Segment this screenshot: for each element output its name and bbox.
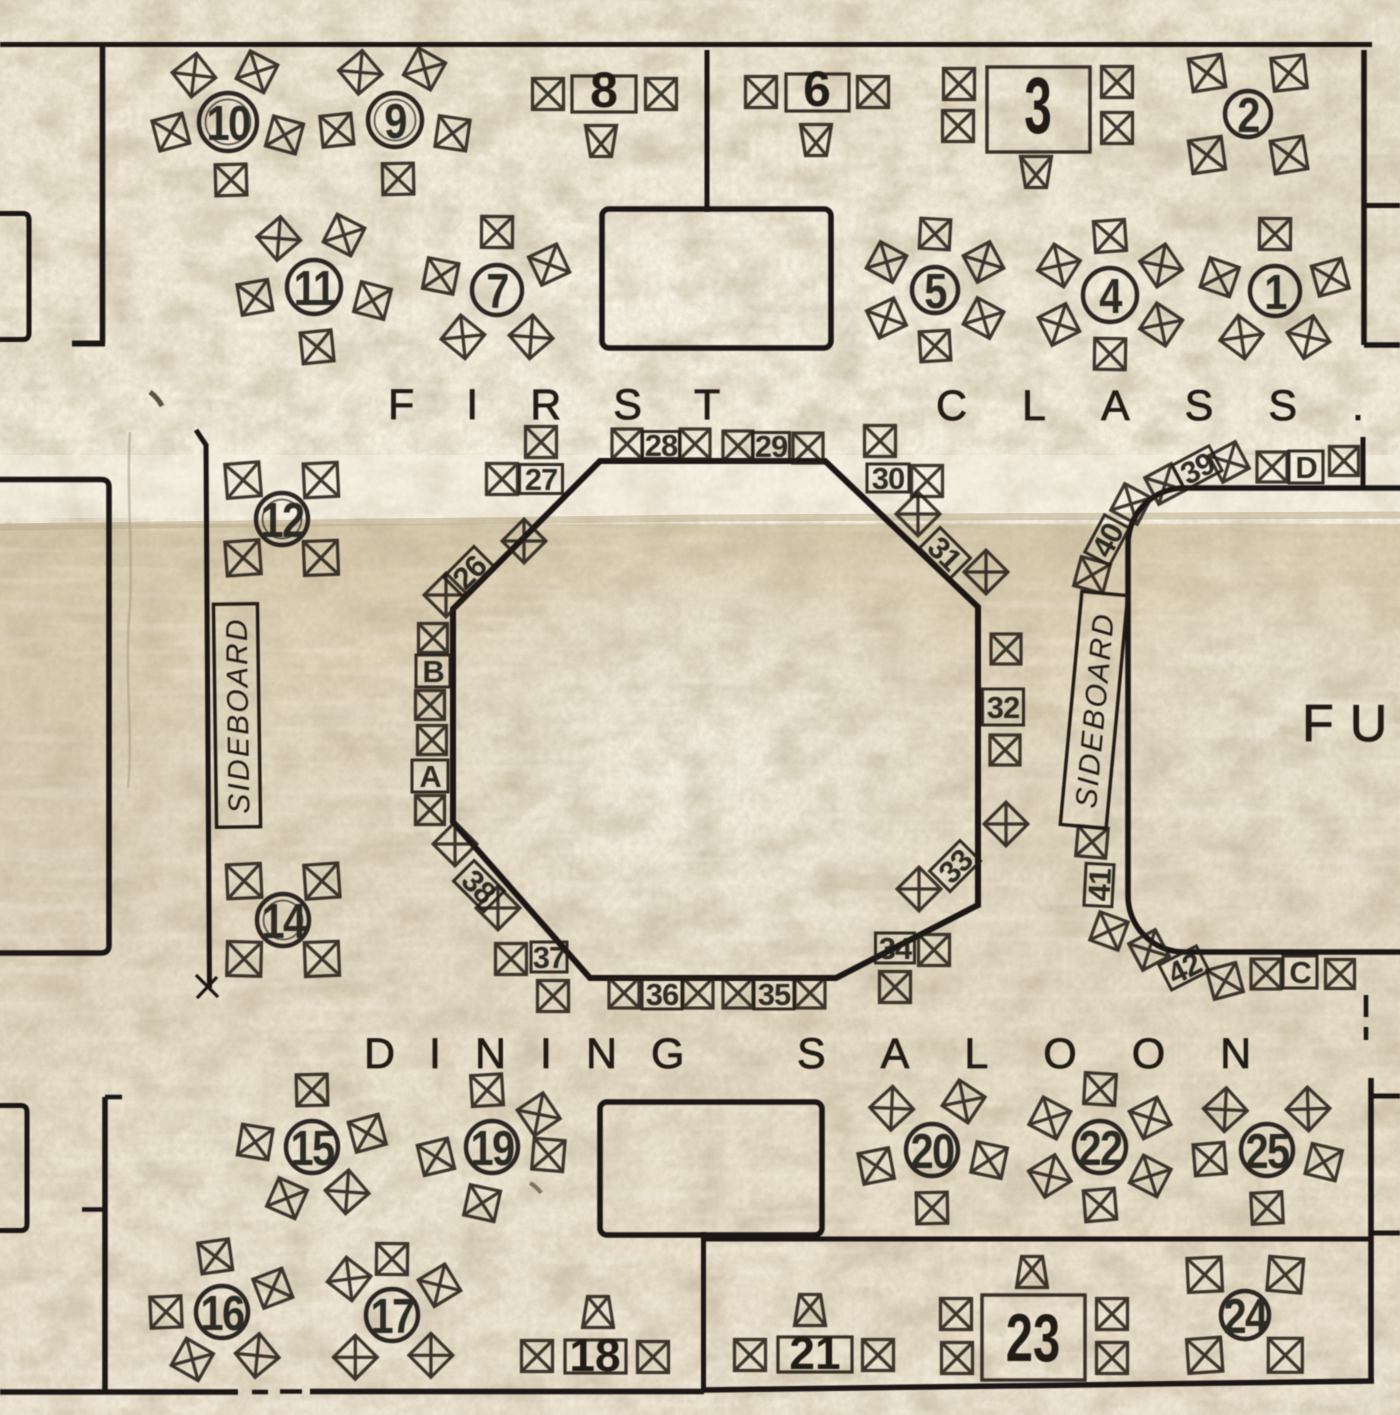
svg-text:5: 5 <box>924 264 947 319</box>
svg-text:8: 8 <box>590 62 618 118</box>
svg-text:3: 3 <box>1024 62 1052 151</box>
svg-text:23: 23 <box>1006 1299 1060 1376</box>
svg-text:41: 41 <box>1081 867 1118 902</box>
svg-text:17: 17 <box>371 1289 414 1344</box>
svg-text:C: C <box>1289 955 1311 990</box>
svg-text:7: 7 <box>486 264 508 319</box>
svg-text:FIRST: FIRST <box>388 381 772 429</box>
svg-text:37: 37 <box>533 940 565 975</box>
svg-text:16: 16 <box>201 1286 244 1341</box>
svg-text:SALOON: SALOON <box>797 1030 1306 1078</box>
svg-text:21: 21 <box>789 1327 840 1379</box>
svg-text:B: B <box>422 654 443 689</box>
svg-text:FU: FU <box>1302 695 1400 753</box>
svg-text:D: D <box>1295 450 1317 485</box>
svg-text:30: 30 <box>872 461 904 496</box>
svg-text:32: 32 <box>987 690 1019 725</box>
svg-text:9: 9 <box>384 94 406 149</box>
svg-text:28: 28 <box>645 428 678 463</box>
svg-text:36: 36 <box>646 977 679 1012</box>
svg-text:1: 1 <box>1264 265 1287 320</box>
svg-text:34: 34 <box>879 931 913 966</box>
svg-text:SIDEBOARD: SIDEBOARD <box>221 617 257 814</box>
svg-text:12: 12 <box>261 493 304 548</box>
svg-text:24: 24 <box>1224 1289 1269 1344</box>
svg-text:A: A <box>419 759 441 794</box>
svg-text:6: 6 <box>803 61 831 117</box>
svg-text:DINING: DINING <box>364 1030 719 1078</box>
svg-text:27: 27 <box>525 462 557 497</box>
svg-text:4: 4 <box>1099 269 1123 324</box>
svg-text:22: 22 <box>1079 1121 1122 1176</box>
svg-text:14: 14 <box>262 894 307 949</box>
svg-text:2: 2 <box>1237 88 1259 143</box>
svg-text:10: 10 <box>207 96 250 151</box>
svg-text:15: 15 <box>291 1121 335 1176</box>
svg-text:29: 29 <box>755 429 788 464</box>
svg-text:18: 18 <box>569 1329 620 1381</box>
svg-text:20: 20 <box>911 1124 954 1179</box>
svg-text:19: 19 <box>471 1121 514 1176</box>
svg-text:11: 11 <box>294 261 336 316</box>
svg-text:25: 25 <box>1246 1124 1290 1179</box>
svg-text:35: 35 <box>758 977 791 1012</box>
svg-text:CLASS.: CLASS. <box>936 382 1400 430</box>
